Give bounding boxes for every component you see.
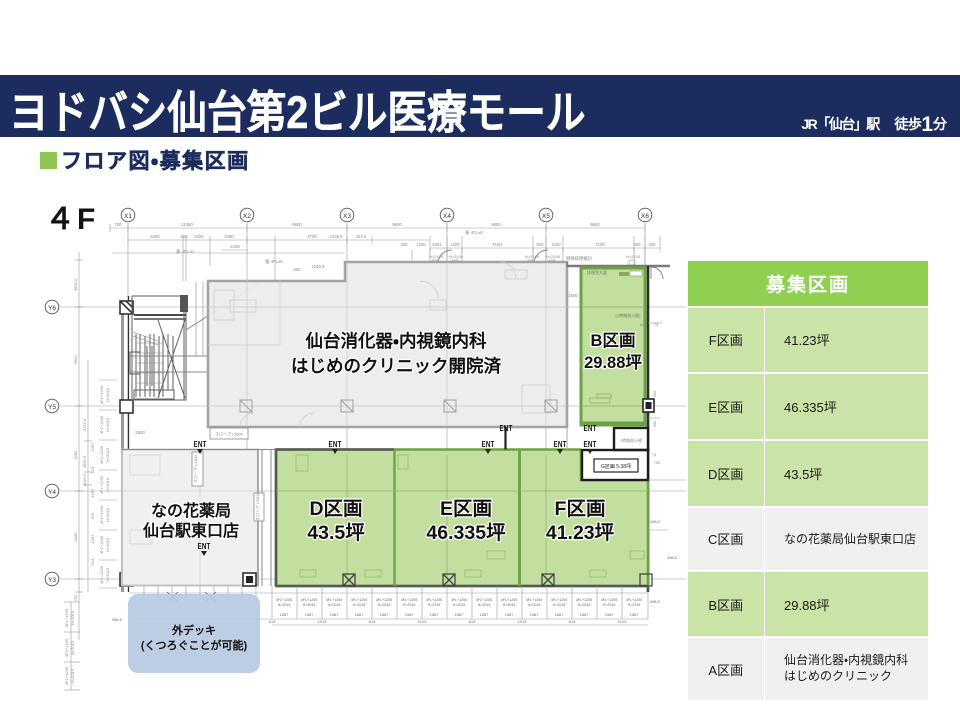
svg-text:はじめのクリニック開院済: はじめのクリニック開院済 bbox=[291, 356, 501, 376]
svg-text:H=2015: H=2015 bbox=[105, 417, 110, 432]
svg-text:1587: 1587 bbox=[330, 613, 338, 617]
svg-text:H=2015: H=2015 bbox=[105, 567, 110, 582]
svg-text:496.5: 496.5 bbox=[650, 520, 660, 524]
svg-text:畜 4FL±0: 畜 4FL±0 bbox=[176, 248, 194, 255]
svg-text:1587: 1587 bbox=[605, 613, 613, 617]
svg-text:300: 300 bbox=[180, 234, 188, 239]
svg-text:H=2015: H=2015 bbox=[278, 603, 291, 607]
svg-text:仙台消化器・内視鏡内科: 仙台消化器・内視鏡内科 bbox=[305, 331, 487, 351]
svg-text:73: 73 bbox=[652, 452, 657, 457]
svg-text:H=2100: H=2100 bbox=[449, 254, 464, 259]
svg-text:4380: 4380 bbox=[73, 532, 78, 542]
svg-text:H=2015: H=2015 bbox=[503, 603, 516, 607]
svg-text:1240.5: 1240.5 bbox=[311, 264, 325, 269]
svg-text:H=2015: H=2015 bbox=[528, 603, 541, 607]
svg-text:スロープ L1400: スロープ L1400 bbox=[192, 454, 198, 483]
svg-text:4FL+1205: 4FL+1205 bbox=[99, 385, 104, 404]
svg-text:H=2015: H=2015 bbox=[105, 537, 110, 552]
svg-text:H=2015: H=2015 bbox=[105, 477, 110, 492]
svg-text:ENT: ENT bbox=[500, 423, 513, 433]
svg-text:外デッキ: 外デッキ bbox=[171, 623, 216, 637]
svg-text:4061: 4061 bbox=[432, 242, 442, 247]
svg-text:2425.5: 2425.5 bbox=[329, 234, 343, 239]
svg-text:4FL+1205: 4FL+1205 bbox=[99, 535, 104, 554]
svg-text:4FL+1205: 4FL+1205 bbox=[501, 598, 517, 602]
svg-text:1587: 1587 bbox=[430, 613, 438, 617]
svg-text:H=2015: H=2015 bbox=[403, 603, 416, 607]
svg-text:200: 200 bbox=[648, 242, 656, 247]
svg-text:1587: 1587 bbox=[280, 613, 288, 617]
svg-text:H=2015: H=2015 bbox=[105, 447, 110, 462]
svg-text:ENT: ENT bbox=[584, 423, 597, 433]
svg-text:1587: 1587 bbox=[380, 613, 388, 617]
svg-text:H=2015: H=2015 bbox=[478, 603, 491, 607]
svg-text:6600: 6600 bbox=[73, 355, 78, 365]
svg-text:4FL+1205: 4FL+1205 bbox=[526, 598, 542, 602]
svg-text:4962.5: 4962.5 bbox=[82, 455, 87, 468]
svg-text:4FL+1205: 4FL+1205 bbox=[64, 666, 69, 685]
svg-text:G区画 5.38坪: G区画 5.38坪 bbox=[601, 463, 631, 470]
svg-text:3658.5: 3658.5 bbox=[73, 278, 78, 291]
svg-text:3714.5: 3714.5 bbox=[82, 418, 87, 431]
svg-text:4700: 4700 bbox=[307, 234, 317, 239]
svg-text:900: 900 bbox=[293, 267, 301, 272]
svg-text:Y6: Y6 bbox=[48, 305, 56, 312]
svg-text:4FL+1205: 4FL+1205 bbox=[301, 598, 317, 602]
svg-text:D区画: D区画 bbox=[309, 498, 362, 520]
svg-text:畜 4FL±0: 畜 4FL±0 bbox=[465, 229, 483, 236]
svg-text:300: 300 bbox=[400, 242, 408, 247]
svg-text:4FL+1205: 4FL+1205 bbox=[451, 598, 467, 602]
svg-text:900: 900 bbox=[633, 242, 641, 247]
svg-text:1287: 1287 bbox=[90, 488, 95, 498]
svg-text:11350: 11350 bbox=[181, 222, 193, 227]
svg-text:1587: 1587 bbox=[305, 613, 313, 617]
svg-text:1013: 1013 bbox=[418, 620, 426, 624]
svg-text:4FL+1205: 4FL+1205 bbox=[476, 598, 492, 602]
svg-text:1587: 1587 bbox=[455, 613, 463, 617]
svg-text:696.5: 696.5 bbox=[650, 600, 660, 604]
svg-text:H=2015: H=2015 bbox=[328, 603, 341, 607]
svg-text:4FL+1205: 4FL+1205 bbox=[601, 598, 617, 602]
svg-text:ENT: ENT bbox=[194, 439, 207, 449]
svg-text:60: 60 bbox=[640, 322, 645, 327]
svg-text:500: 500 bbox=[652, 420, 657, 427]
svg-text:1587: 1587 bbox=[630, 613, 638, 617]
svg-text:7100: 7100 bbox=[595, 242, 605, 247]
svg-text:613: 613 bbox=[469, 620, 475, 624]
svg-text:9600: 9600 bbox=[292, 222, 302, 227]
svg-text:1013: 1013 bbox=[618, 620, 626, 624]
svg-text:1287: 1287 bbox=[90, 534, 95, 544]
svg-text:2900: 2900 bbox=[135, 430, 145, 435]
svg-text:スロープ L3600: スロープ L3600 bbox=[254, 492, 260, 521]
svg-text:1200: 1200 bbox=[450, 242, 460, 247]
svg-text:1200: 1200 bbox=[551, 242, 561, 247]
svg-text:(1時間耐火壁): (1時間耐火壁) bbox=[616, 312, 642, 318]
svg-text:613: 613 bbox=[90, 466, 95, 473]
svg-text:700: 700 bbox=[73, 594, 78, 601]
svg-text:1200: 1200 bbox=[416, 242, 426, 247]
svg-text:1587: 1587 bbox=[530, 613, 538, 617]
svg-text:1600: 1600 bbox=[568, 293, 578, 298]
svg-text:5250: 5250 bbox=[150, 234, 160, 239]
svg-text:ENT: ENT bbox=[329, 439, 342, 449]
svg-text:43.5坪: 43.5坪 bbox=[307, 522, 365, 544]
svg-text:H=2015: H=2015 bbox=[378, 603, 391, 607]
svg-text:4FL+1205: 4FL+1205 bbox=[64, 608, 69, 627]
svg-text:Y3: Y3 bbox=[48, 577, 56, 584]
svg-text:9600: 9600 bbox=[590, 222, 600, 227]
svg-text:H=2015: H=2015 bbox=[578, 603, 591, 607]
svg-text:1時間耐火壁: 1時間耐火壁 bbox=[620, 437, 642, 443]
svg-text:2080: 2080 bbox=[224, 234, 234, 239]
svg-text:ENT: ENT bbox=[584, 439, 597, 449]
svg-text:1587: 1587 bbox=[405, 613, 413, 617]
svg-text:Y5: Y5 bbox=[48, 404, 56, 411]
svg-text:H=2015: H=2015 bbox=[453, 603, 466, 607]
svg-text:1287: 1287 bbox=[90, 442, 95, 452]
svg-text:29.88坪: 29.88坪 bbox=[584, 353, 642, 372]
svg-text:X4: X4 bbox=[443, 213, 451, 220]
svg-text:2438: 2438 bbox=[230, 244, 240, 249]
svg-text:424.5: 424.5 bbox=[356, 234, 367, 239]
svg-text:E区画: E区画 bbox=[440, 498, 492, 520]
svg-text:700: 700 bbox=[114, 222, 122, 227]
svg-text:4FL+1205: 4FL+1205 bbox=[64, 638, 69, 657]
svg-text:X5: X5 bbox=[542, 213, 550, 220]
svg-text:1587: 1587 bbox=[555, 613, 563, 617]
svg-text:H=2015: H=2015 bbox=[105, 507, 110, 522]
svg-text:畜 4FL±0: 畜 4FL±0 bbox=[265, 258, 283, 265]
svg-text:613: 613 bbox=[90, 512, 95, 519]
svg-text:613: 613 bbox=[369, 620, 375, 624]
svg-text:4FL+1205: 4FL+1205 bbox=[626, 598, 642, 602]
svg-text:1587: 1587 bbox=[355, 613, 363, 617]
svg-text:H=2015: H=2015 bbox=[603, 603, 616, 607]
svg-text:ENT: ENT bbox=[198, 541, 211, 551]
svg-text:4FL+1205: 4FL+1205 bbox=[551, 598, 567, 602]
svg-text:613: 613 bbox=[90, 558, 95, 565]
svg-text:ENT: ENT bbox=[554, 439, 567, 449]
svg-text:X2: X2 bbox=[243, 213, 251, 220]
svg-text:排煙窓大要: 排煙窓大要 bbox=[587, 269, 607, 275]
svg-text:H=2015: H=2015 bbox=[105, 387, 110, 402]
svg-text:4FL+1205: 4FL+1205 bbox=[326, 598, 342, 602]
svg-text:H=2015: H=2015 bbox=[553, 603, 566, 607]
svg-text:H=2015: H=2015 bbox=[628, 603, 641, 607]
svg-text:なの花薬局: なの花薬局 bbox=[151, 501, 231, 520]
svg-text:仙台駅東口店: 仙台駅東口店 bbox=[142, 521, 239, 540]
svg-text:X1: X1 bbox=[124, 213, 132, 220]
svg-text:X3: X3 bbox=[343, 213, 351, 220]
svg-text:H=2100: H=2100 bbox=[546, 254, 561, 259]
svg-text:1013: 1013 bbox=[518, 620, 526, 624]
svg-text:4FL+1205: 4FL+1205 bbox=[99, 505, 104, 524]
svg-text:613: 613 bbox=[269, 620, 275, 624]
svg-text:特殊排煙検討: 特殊排煙検討 bbox=[566, 255, 592, 262]
svg-text:4FL+1205: 4FL+1205 bbox=[276, 598, 292, 602]
svg-text:2420: 2420 bbox=[194, 234, 204, 239]
svg-text:4FL+1205: 4FL+1205 bbox=[401, 598, 417, 602]
svg-text:4049.5: 4049.5 bbox=[82, 473, 87, 486]
svg-text:700: 700 bbox=[654, 460, 661, 465]
svg-text:X6: X6 bbox=[641, 213, 649, 220]
svg-text:6280: 6280 bbox=[73, 450, 78, 460]
svg-text:(くつろぐことが可能): (くつろぐことが可能) bbox=[141, 638, 248, 652]
svg-text:スロープ L3600: スロープ L3600 bbox=[215, 431, 244, 437]
svg-text:F区画: F区画 bbox=[555, 498, 606, 520]
svg-text:4FL+1205: 4FL+1205 bbox=[99, 445, 104, 464]
svg-text:9600: 9600 bbox=[392, 222, 402, 227]
svg-text:4FL+1205: 4FL+1205 bbox=[99, 565, 104, 584]
svg-text:9600: 9600 bbox=[491, 222, 501, 227]
svg-text:500: 500 bbox=[652, 390, 657, 397]
svg-text:4FL+1205: 4FL+1205 bbox=[576, 598, 592, 602]
svg-text:Y4: Y4 bbox=[48, 489, 56, 496]
svg-text:ENT: ENT bbox=[482, 439, 495, 449]
svg-text:H=2015: H=2015 bbox=[303, 603, 316, 607]
svg-text:41.23坪: 41.23坪 bbox=[546, 522, 615, 544]
svg-text:613: 613 bbox=[569, 620, 575, 624]
svg-text:1587: 1587 bbox=[505, 613, 513, 617]
svg-text:73: 73 bbox=[654, 322, 659, 327]
svg-text:4FL+1205: 4FL+1205 bbox=[99, 475, 104, 494]
svg-text:4FL+1205: 4FL+1205 bbox=[376, 598, 392, 602]
svg-text:1587: 1587 bbox=[480, 613, 488, 617]
svg-text:B区画: B区画 bbox=[591, 331, 636, 350]
svg-text:46.335坪: 46.335坪 bbox=[426, 522, 506, 544]
svg-text:7100: 7100 bbox=[492, 242, 502, 247]
svg-text:H=2015: H=2015 bbox=[428, 603, 441, 607]
svg-text:4FL+1205: 4FL+1205 bbox=[99, 415, 104, 434]
svg-text:4FL+1205: 4FL+1205 bbox=[426, 598, 442, 602]
svg-text:4FL+1205: 4FL+1205 bbox=[351, 598, 367, 602]
svg-text:H=2015: H=2015 bbox=[353, 603, 366, 607]
svg-text:556.5: 556.5 bbox=[112, 618, 122, 622]
svg-text:496.5: 496.5 bbox=[667, 556, 677, 560]
svg-text:1587: 1587 bbox=[580, 613, 588, 617]
svg-text:900: 900 bbox=[536, 242, 544, 247]
svg-text:H=2100: H=2100 bbox=[626, 254, 641, 259]
svg-text:1013: 1013 bbox=[318, 620, 326, 624]
